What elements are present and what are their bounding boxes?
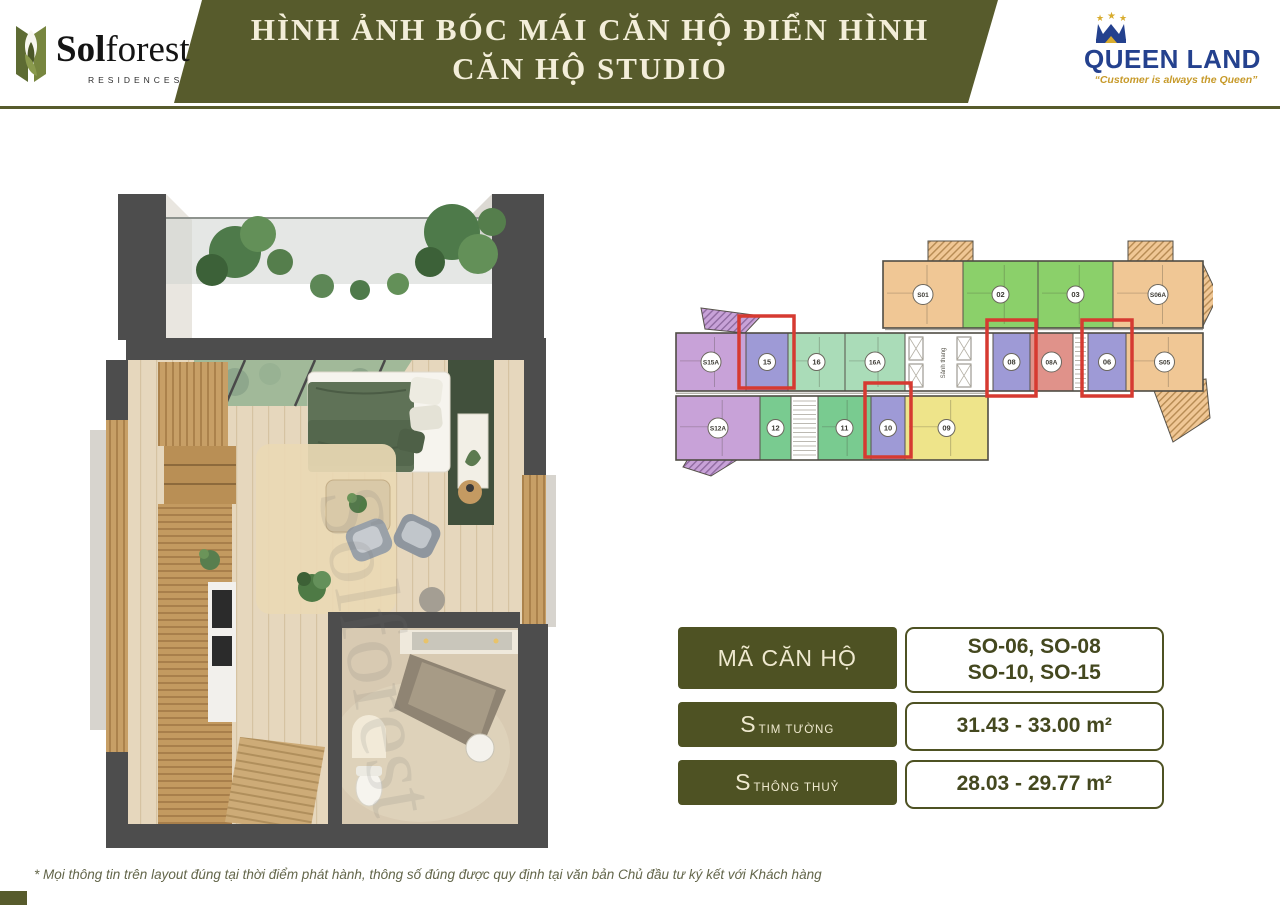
hatched-wing-tip: [1128, 241, 1173, 261]
area-gross-value: 31.43 - 33.00 m²: [905, 702, 1164, 751]
crown-icon: ★ ★ ★: [1088, 12, 1134, 46]
header-underline: [0, 106, 1280, 109]
unit-badge-label: 10: [884, 423, 892, 432]
unit-badge-label: S06A: [1150, 292, 1167, 299]
unit-info-table: MÃ CĂN HỘ SO-06, SO-08 SO-10, SO-15 S TI…: [678, 627, 1164, 818]
unit-badge-label: 03: [1071, 290, 1079, 299]
unit-badge-label: 16: [812, 357, 820, 366]
hatched-wing-tip: [928, 241, 973, 261]
unit-badge-label: 06: [1103, 357, 1111, 366]
area-gross-row: S TIM TƯỜNG 31.43 - 33.00 m²: [678, 702, 1164, 751]
area-gross-label: S TIM TƯỜNG: [678, 702, 897, 747]
hatched-wing-tip: [1203, 264, 1213, 326]
unit-badge-label: 12: [771, 423, 779, 432]
sink: [466, 734, 494, 762]
footer-disclaimer: * Mọi thông tin trên layout đúng tại thờ…: [34, 867, 1014, 882]
unit-badge-label: 11: [841, 423, 849, 432]
page-title: HÌNH ẢNH BÓC MÁI CĂN HỘ ĐIỂN HÌNH CĂN HỘ…: [210, 0, 970, 103]
floorplan-svg: Sảnh thangS010203S06AS15A151616A0808A06S…: [673, 236, 1213, 478]
unit-badge-label: 09: [942, 423, 950, 432]
queenland-tagline: “Customer is always the Queen”: [1078, 74, 1274, 86]
area-net-row: S THÔNG THUỶ 28.03 - 29.77 m²: [678, 760, 1164, 809]
unit-badge-label: 08: [1007, 357, 1015, 366]
studio-render-svg: Solforest: [60, 192, 560, 852]
unit-badge-label: S12A: [710, 425, 727, 432]
entry-mat: [225, 737, 325, 832]
svg-text:★: ★: [1096, 13, 1104, 23]
unit-code-line1: SO-06, SO-08: [968, 634, 1101, 660]
unit-badge-label: 15: [763, 357, 771, 366]
unit-code-value: SO-06, SO-08 SO-10, SO-15: [905, 627, 1164, 693]
hatched-wing-tip: [701, 308, 761, 333]
unit-badge-label: 02: [996, 290, 1004, 299]
header-banner: Solforest RESIDENCES HÌNH ẢNH BÓC MÁI CĂ…: [0, 0, 1280, 103]
floorplan-diagram: Sảnh thangS010203S06AS15A151616A0808A06S…: [673, 236, 1213, 478]
balcony-plants: [166, 204, 506, 300]
area-net-value: 28.03 - 29.77 m²: [905, 760, 1164, 809]
queenland-logo: ★ ★ ★ QUEEN LAND “Customer is always the…: [1078, 8, 1274, 100]
unit-code-label: MÃ CĂN HỘ: [678, 627, 897, 689]
solforest-logo: Solforest RESIDENCES: [10, 22, 200, 92]
page-title-line1: HÌNH ẢNH BÓC MÁI CĂN HỘ ĐIỂN HÌNH: [210, 12, 970, 48]
core-label: Sảnh thang: [941, 348, 947, 379]
unit-badge-label: 16A: [869, 359, 881, 366]
brand-name: Solforest: [56, 28, 190, 71]
queenland-name: QUEEN LAND: [1084, 44, 1272, 75]
wardrobe-kitchen-cabinets: [158, 362, 236, 832]
unit-badge-label: 08A: [1046, 359, 1058, 366]
svg-text:★: ★: [1119, 13, 1127, 23]
unit-code-line2: SO-10, SO-15: [968, 660, 1101, 686]
unit-badge-label: S01: [917, 292, 929, 299]
corner-accent-chip: [0, 891, 27, 905]
solforest-leaf-icon: [12, 24, 50, 86]
unit-badge-label: S05: [1159, 359, 1171, 366]
brochure-page: { "header": { "brand": {"name_bold": "So…: [0, 0, 1280, 905]
svg-text:★: ★: [1107, 12, 1116, 22]
brand-subtitle: RESIDENCES: [88, 75, 183, 85]
unit-code-row: MÃ CĂN HỘ SO-06, SO-08 SO-10, SO-15: [678, 627, 1164, 693]
studio-3d-render: Solforest: [60, 192, 560, 852]
unit-badge-label: S15A: [703, 359, 720, 366]
area-net-label: S THÔNG THUỶ: [678, 760, 897, 805]
page-title-line2: CĂN HỘ STUDIO: [210, 51, 970, 87]
